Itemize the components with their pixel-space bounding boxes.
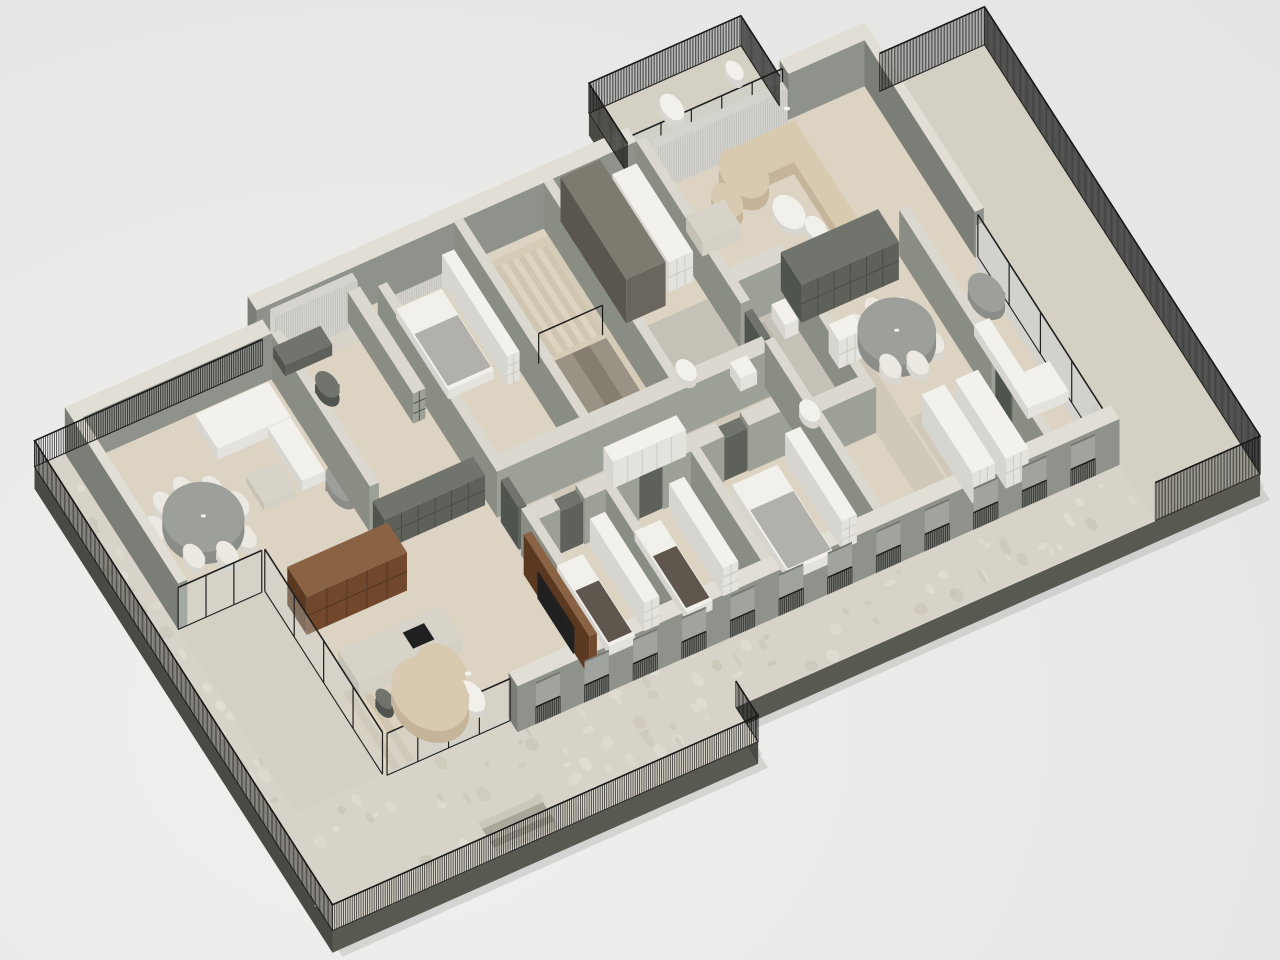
dining-left-cup: [201, 514, 206, 517]
nook-table-2: [465, 671, 472, 675]
floor-plan-stage: [0, 0, 1280, 960]
lamp-ne: [784, 107, 790, 111]
dining-ne-cup: [894, 329, 899, 332]
floor-plan-3d-render: [0, 0, 1280, 960]
